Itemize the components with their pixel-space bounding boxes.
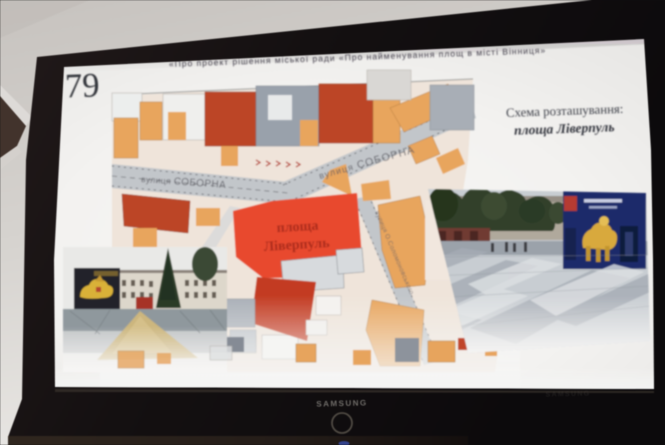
svg-text:SAMSUNG: SAMSUNG	[316, 398, 368, 408]
svg-text:площа: площа	[276, 219, 319, 237]
svg-text:SAMSUNG: SAMSUNG	[545, 390, 590, 398]
